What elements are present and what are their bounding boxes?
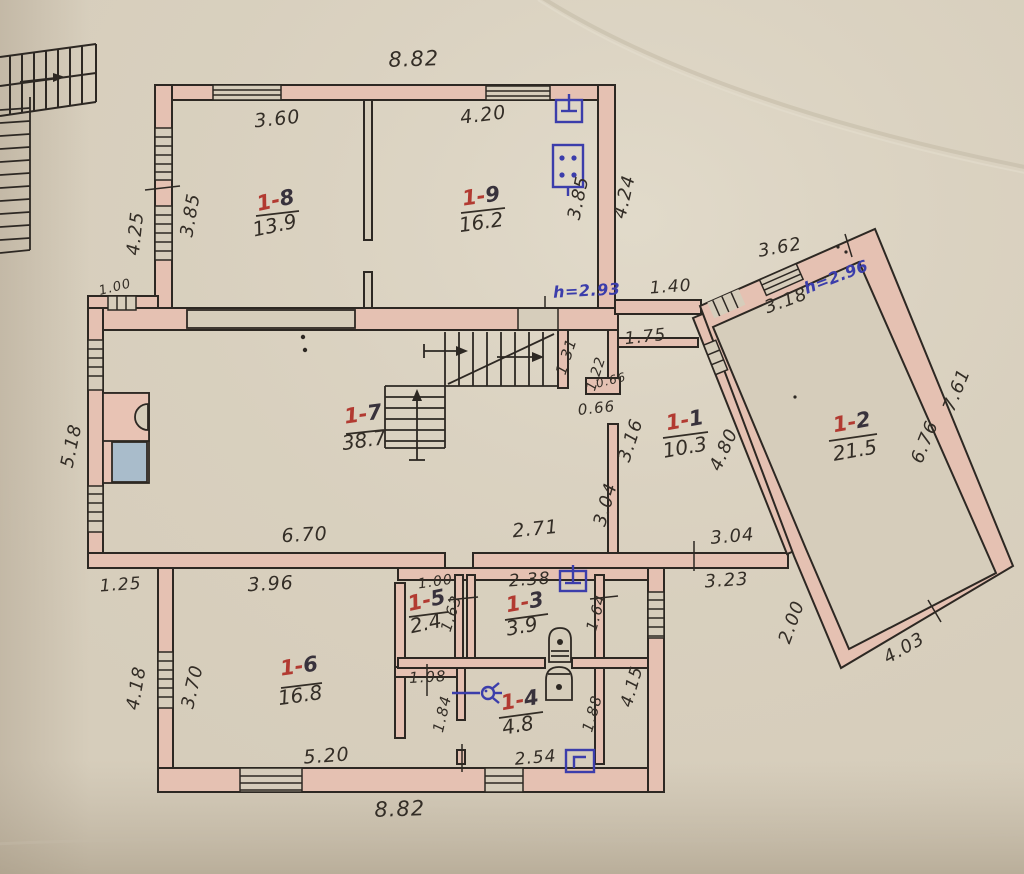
ceiling-height-label: h=2.93: [553, 279, 621, 301]
dimension-label: 1.40: [649, 276, 692, 299]
dimension-label: 6.70: [281, 523, 328, 547]
dimension-label: 8.82: [388, 46, 440, 72]
dimension-label: 3.04: [710, 524, 756, 549]
window: [108, 296, 136, 310]
window: [648, 592, 664, 638]
window: [155, 128, 172, 180]
window: [155, 206, 172, 260]
dimension-label: 3.23: [704, 569, 749, 593]
window: [213, 85, 281, 100]
floor-plan-canvas: 8.823.604.203.853.854.244.251.001.403.62…: [0, 0, 1024, 874]
dimension-label: 2.38: [508, 569, 551, 592]
toilet-icon: [549, 628, 571, 662]
window: [240, 768, 302, 792]
dimension-label: 1.08: [409, 667, 447, 687]
window: [485, 768, 523, 792]
dimension-label: 8.82: [374, 796, 426, 822]
window: [88, 486, 103, 532]
floor-plan-photo: 8.823.604.203.853.854.244.251.001.403.62…: [0, 0, 1024, 874]
dimension-label: 1.25: [99, 574, 142, 597]
boiler-icon: [546, 667, 572, 700]
window: [158, 652, 173, 708]
sink-icon: [112, 442, 147, 482]
window: [486, 86, 550, 100]
dimension-label: 2.54: [514, 746, 557, 770]
window: [88, 340, 103, 390]
dimension-label: 3.96: [247, 572, 294, 596]
dimension-label: 5.20: [303, 743, 351, 768]
